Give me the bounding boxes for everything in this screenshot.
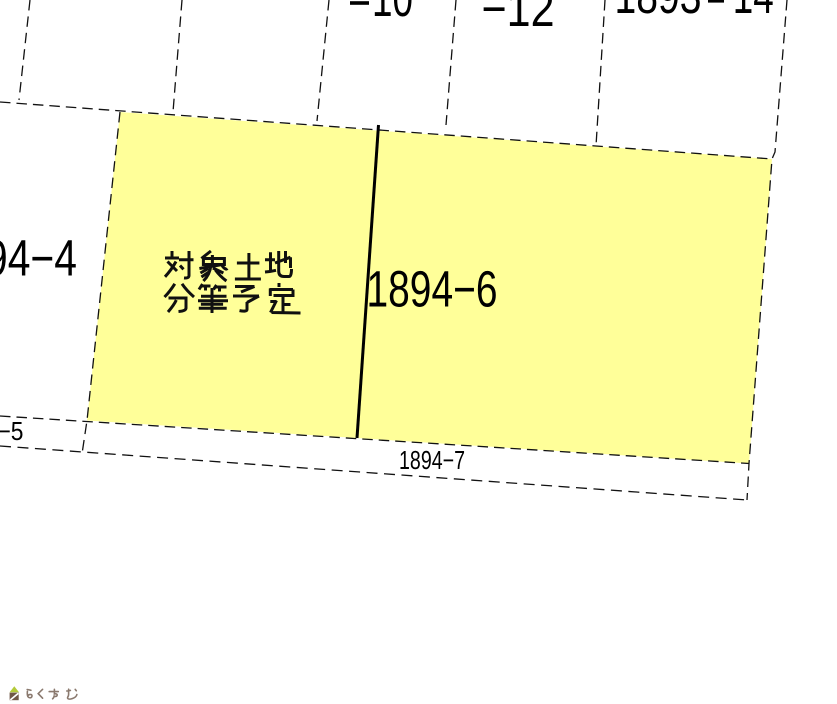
svg-text:−12: −12 — [482, 0, 555, 37]
svg-text:−5: −5 — [0, 416, 24, 446]
svg-text:10: 10 — [372, 0, 413, 27]
svg-text:94−4: 94−4 — [0, 229, 77, 286]
svg-text:14: 14 — [733, 0, 774, 24]
svg-text:1893: 1893 — [615, 0, 702, 24]
svg-text:1894−7: 1894−7 — [399, 445, 465, 475]
svg-text:1894−6: 1894−6 — [367, 260, 498, 317]
